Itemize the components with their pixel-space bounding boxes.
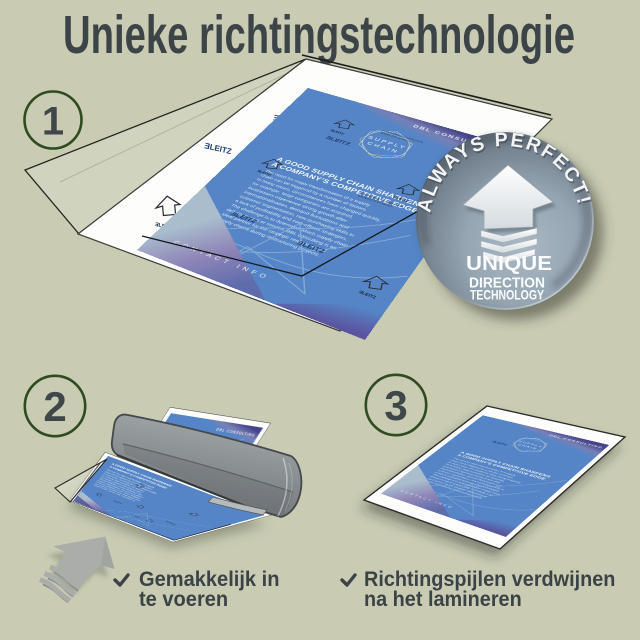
svg-text:2: 2 xyxy=(43,383,66,430)
svg-text:1: 1 xyxy=(42,100,64,144)
svg-text:3: 3 xyxy=(384,382,407,429)
